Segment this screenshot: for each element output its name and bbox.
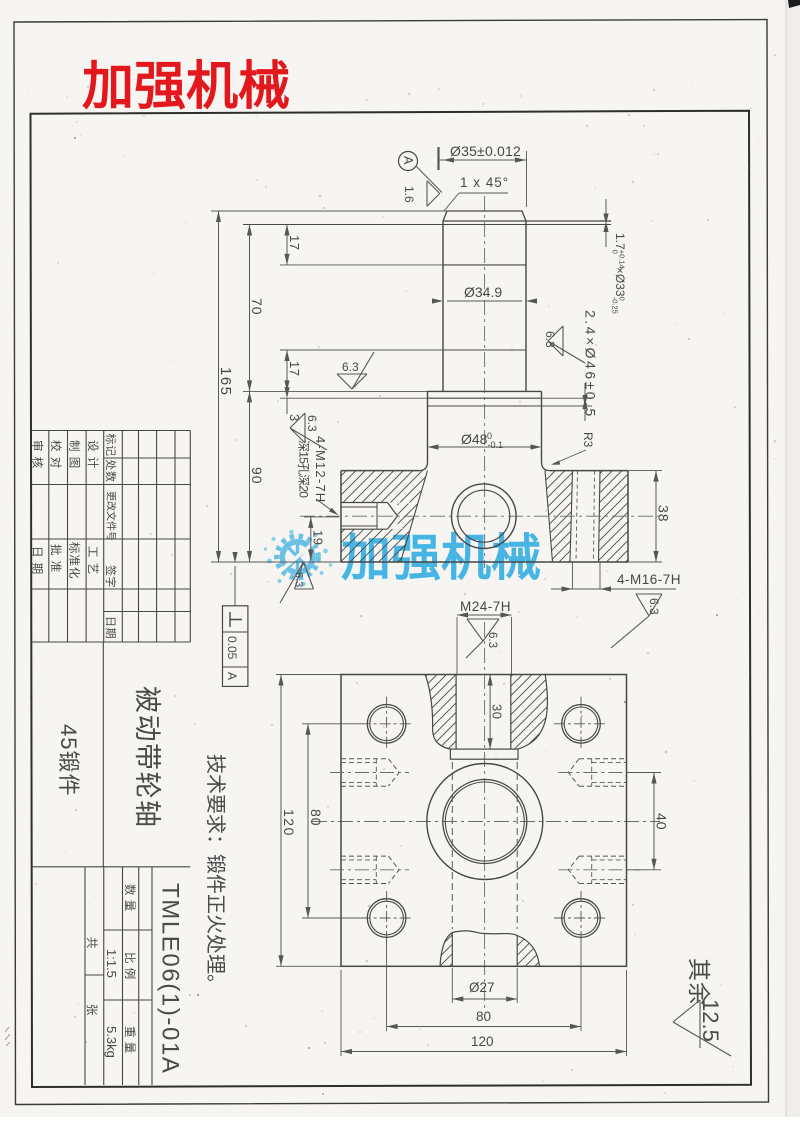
svg-text:1.6: 1.6 xyxy=(402,186,416,203)
svg-text:120: 120 xyxy=(471,1034,494,1049)
svg-text:1 x 45°: 1 x 45° xyxy=(460,175,509,190)
svg-text:标准化: 标准化 xyxy=(68,542,82,580)
svg-text:标记: 标记 xyxy=(104,434,118,457)
svg-text:校 对: 校 对 xyxy=(49,440,63,469)
svg-text:4-M16-7H: 4-M16-7H xyxy=(617,572,681,587)
svg-text:Ø27: Ø27 xyxy=(469,980,495,995)
svg-text:数 量: 数 量 xyxy=(123,884,137,912)
svg-text:0.05: 0.05 xyxy=(225,636,239,660)
svg-text:6.3: 6.3 xyxy=(486,632,498,648)
svg-text:比 例: 比 例 xyxy=(123,952,137,980)
svg-text:80: 80 xyxy=(308,809,324,827)
svg-text:设 计: 设 计 xyxy=(86,440,99,469)
svg-text:Ø35±0.012: Ø35±0.012 xyxy=(450,143,521,159)
svg-text:30: 30 xyxy=(490,704,505,719)
svg-text:张: 张 xyxy=(85,1004,98,1016)
svg-text:共: 共 xyxy=(85,937,98,949)
svg-text:批 准: 批 准 xyxy=(49,544,63,573)
svg-text:加强机械: 加强机械 xyxy=(82,58,290,116)
svg-text:12.5: 12.5 xyxy=(698,999,723,1042)
svg-text:45锻件: 45锻件 xyxy=(56,724,81,796)
svg-text:Ø34.9: Ø34.9 xyxy=(464,284,502,300)
svg-text:A: A xyxy=(401,156,415,165)
svg-text:日期: 日期 xyxy=(104,616,117,639)
svg-text:A: A xyxy=(225,672,239,680)
svg-text:审 核: 审 核 xyxy=(31,440,45,469)
svg-text:被动带轮轴: 被动带轮轴 xyxy=(132,686,162,829)
svg-text:深15孔深20: 深15孔深20 xyxy=(297,440,311,498)
svg-text:R3: R3 xyxy=(581,432,595,448)
svg-text:120: 120 xyxy=(281,809,297,837)
svg-text:165: 165 xyxy=(217,367,234,397)
svg-text:1:1.5: 1:1.5 xyxy=(104,949,119,978)
svg-text:70: 70 xyxy=(249,298,265,316)
svg-text:更改文件号: 更改文件号 xyxy=(105,491,118,541)
svg-text:17: 17 xyxy=(287,361,302,376)
svg-text:2.4×Ø46±0.5: 2.4×Ø46±0.5 xyxy=(583,310,599,419)
svg-text:6.3: 6.3 xyxy=(293,572,305,587)
svg-text:6.3: 6.3 xyxy=(647,598,661,615)
svg-text:制 图: 制 图 xyxy=(68,440,81,469)
svg-text:17: 17 xyxy=(287,235,302,250)
svg-text:处数: 处数 xyxy=(104,460,117,483)
svg-text:M24-7H: M24-7H xyxy=(460,599,511,614)
svg-text:5.3kg: 5.3kg xyxy=(104,1026,119,1058)
svg-text:工 艺: 工 艺 xyxy=(86,546,99,575)
svg-text:19: 19 xyxy=(311,530,326,545)
svg-text:重 量: 重 量 xyxy=(123,1026,137,1054)
svg-text:40: 40 xyxy=(654,813,670,831)
svg-text:技术要求：锻件正火处理。: 技术要求：锻件正火处理。 xyxy=(204,754,227,994)
svg-text:6.3: 6.3 xyxy=(342,360,359,374)
svg-text:38: 38 xyxy=(656,505,672,523)
svg-text:日 期: 日 期 xyxy=(31,546,44,575)
svg-text:6.3: 6.3 xyxy=(543,331,557,348)
svg-text:TMLE06(1)-01A: TMLE06(1)-01A xyxy=(157,883,184,1075)
svg-text:90: 90 xyxy=(249,467,265,485)
svg-text:签字: 签字 xyxy=(104,565,118,588)
svg-text:80: 80 xyxy=(476,1009,491,1024)
svg-text:6.3: 6.3 xyxy=(305,415,319,432)
